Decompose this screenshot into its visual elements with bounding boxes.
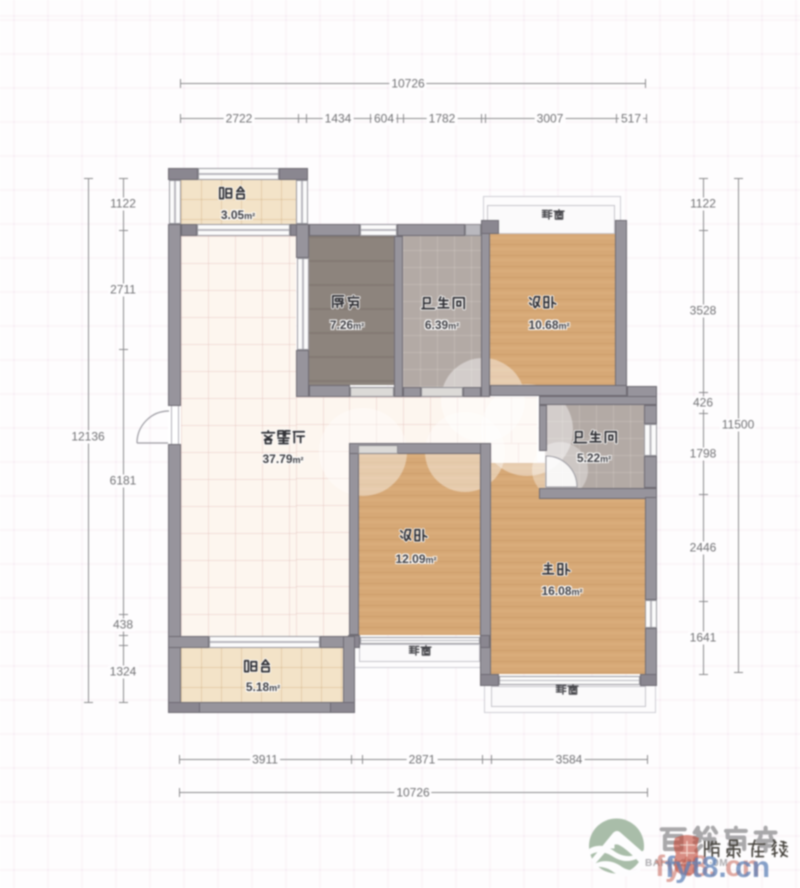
svg-text:fyt8. cn: fyt8. cn <box>665 851 770 884</box>
